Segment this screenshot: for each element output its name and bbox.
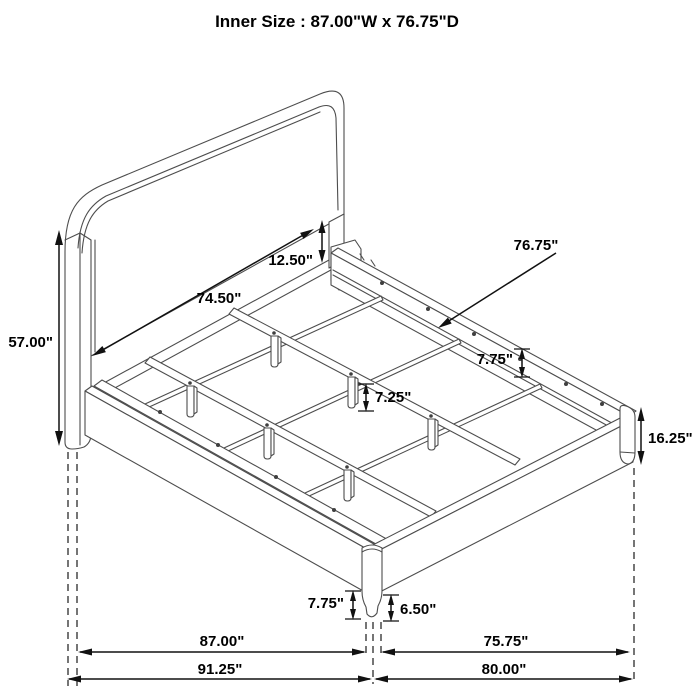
page-title: Inner Size : 87.00"W x 76.75"D [215,12,459,31]
center-leg [428,414,438,450]
dim-label-slat-depth: 76.75" [514,237,559,254]
dim-corner-height: 16.25" [638,407,693,465]
dim-label-corner-height: 16.25" [648,430,693,447]
diagram-canvas: 57.00" 74.50" 12.50" 76.75" 7.75" 7.25" [0,0,700,700]
center-leg [348,372,358,408]
right-corner-leg [620,405,635,464]
dim-label-overall-width: 91.25" [198,661,243,678]
right-side-rail [331,248,636,448]
bed-dimension-diagram: 57.00" 74.50" 12.50" 76.75" 7.75" 7.25" [0,0,700,700]
foot-rail [367,415,633,595]
center-leg [187,381,197,417]
dim-label-overall-height: 57.00" [8,334,53,351]
dim-inner-width: 87.00" [78,633,366,656]
dim-leg-height: 7.75" [308,590,361,620]
dim-overall-width: 91.25" [67,661,372,683]
dim-overall-height: 57.00" [8,230,63,446]
dim-label-center-leg: 7.25" [375,389,411,406]
center-leg [264,423,274,459]
dim-label-rail-height: 7.75" [477,351,513,368]
center-leg [271,331,281,367]
dim-inner-depth: 75.75" [381,633,630,656]
dim-label-leg-lower: 6.50" [400,601,436,618]
dim-label-headboard-width: 74.50" [197,290,242,307]
front-corner-leg [362,545,382,617]
dim-label-panel-gap: 12.50" [268,252,313,269]
center-leg [344,465,354,501]
dim-leg-lower: 6.50" [383,594,436,622]
dim-label-inner-depth: 75.75" [484,633,529,650]
dim-label-inner-width: 87.00" [200,633,245,650]
dim-overall-depth: 80.00" [374,661,633,683]
dim-label-overall-depth: 80.00" [482,661,527,678]
dim-label-leg-height: 7.75" [308,595,344,612]
